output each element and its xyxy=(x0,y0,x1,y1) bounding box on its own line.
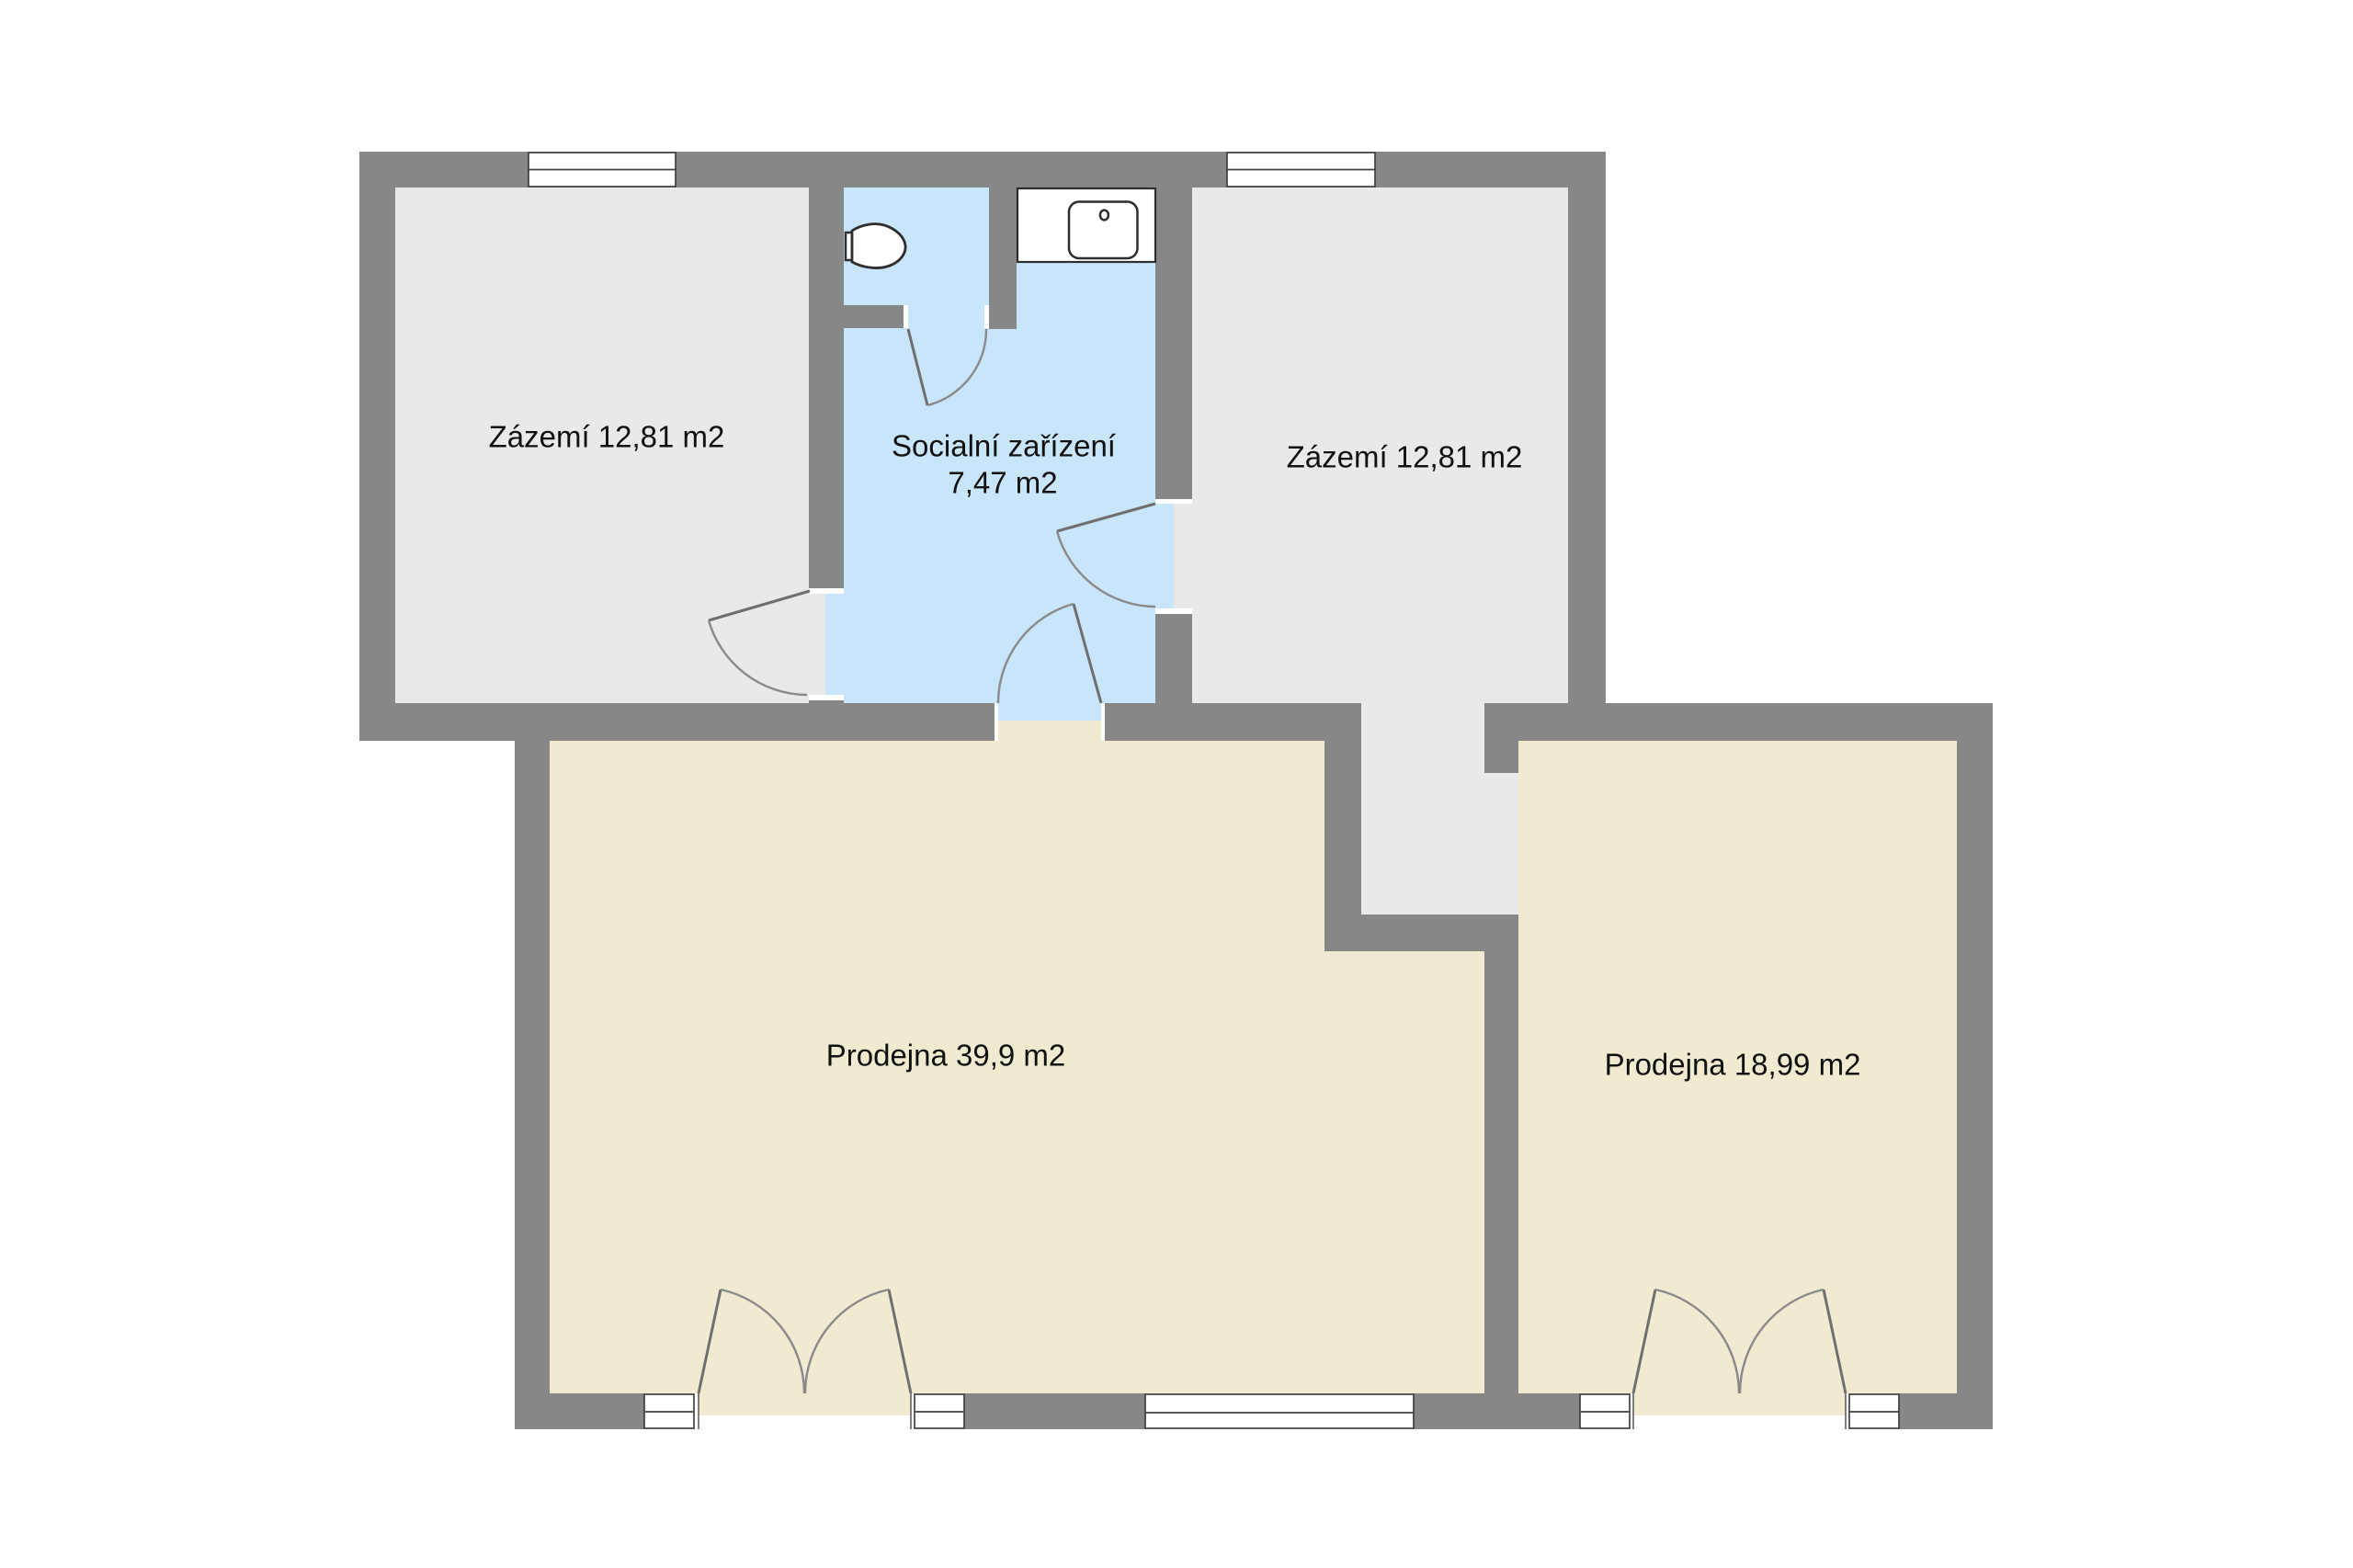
svg-text:Prodejna 18,99 m2: Prodejna 18,99 m2 xyxy=(1605,1048,1861,1082)
svg-text:Zázemí 12,81 m2: Zázemí 12,81 m2 xyxy=(1287,440,1523,474)
svg-text:7,47 m2: 7,47 m2 xyxy=(948,466,1057,500)
svg-text:Zázemí 12,81 m2: Zázemí 12,81 m2 xyxy=(489,420,725,454)
svg-text:Prodejna 39,9 m2: Prodejna 39,9 m2 xyxy=(826,1039,1066,1073)
svg-text:Socialní zařízení: Socialní zařízení xyxy=(892,429,1116,463)
